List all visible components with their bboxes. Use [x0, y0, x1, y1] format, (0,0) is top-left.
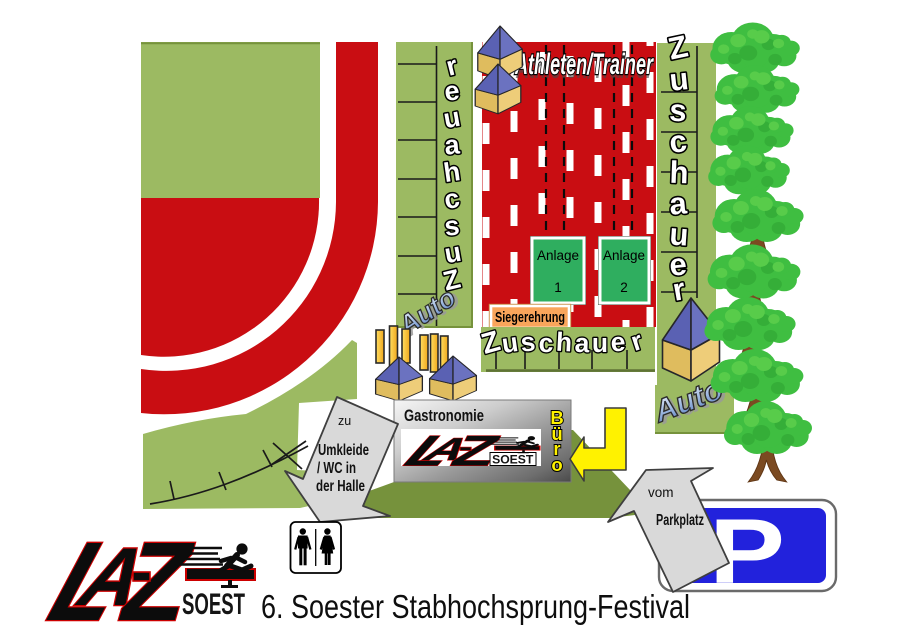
svg-text:o: o — [551, 454, 562, 475]
svg-text:Athleten/Trainer: Athleten/Trainer — [514, 48, 654, 81]
svg-text:Siegerehrung: Siegerehrung — [495, 309, 565, 326]
svg-text:s: s — [443, 210, 461, 241]
svg-text:der Halle: der Halle — [316, 478, 365, 495]
svg-text:Umkleide: Umkleide — [318, 442, 369, 459]
svg-text:e: e — [610, 327, 627, 358]
svg-text:u: u — [592, 328, 608, 358]
svg-text:zu: zu — [338, 414, 351, 428]
svg-text:c: c — [539, 328, 554, 358]
svg-text:s: s — [520, 327, 537, 358]
svg-text:Anlage: Anlage — [537, 248, 579, 263]
svg-text:vom: vom — [648, 485, 674, 500]
svg-text:h: h — [555, 327, 573, 358]
svg-text:Anlage: Anlage — [603, 248, 645, 263]
svg-text:Parkplatz: Parkplatz — [656, 512, 704, 529]
svg-text:/ WC in: / WC in — [317, 460, 356, 477]
svg-text:2: 2 — [620, 280, 628, 295]
svg-text:1: 1 — [554, 280, 562, 295]
svg-text:a: a — [574, 328, 590, 359]
svg-text:6. Soester Stabhochsprung-Fest: 6. Soester Stabhochsprung-Festival — [261, 588, 690, 625]
svg-text:Gastronomie: Gastronomie — [404, 406, 484, 425]
